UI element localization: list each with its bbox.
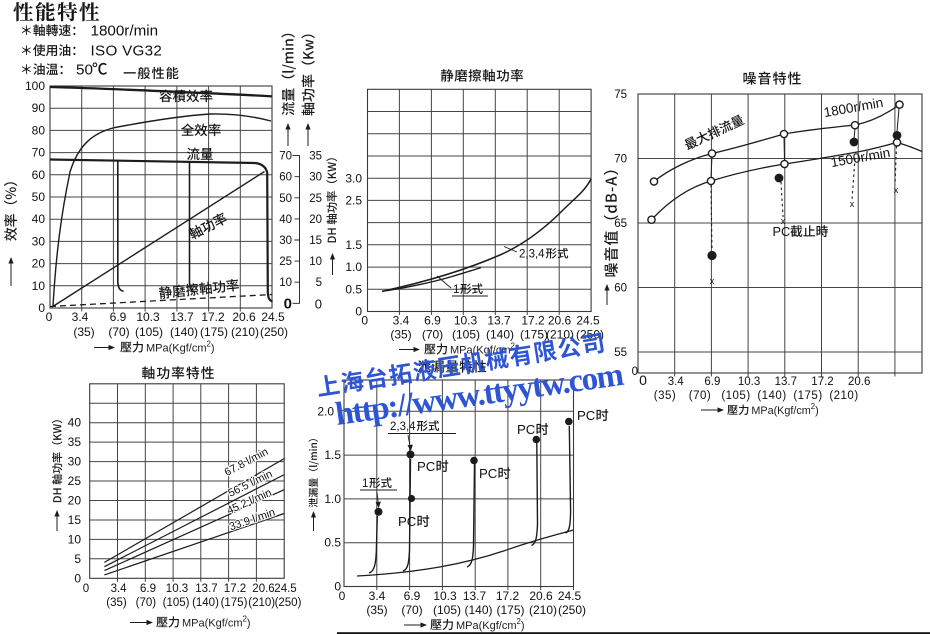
svg-text:(210): (210) <box>546 328 574 342</box>
svg-text:0: 0 <box>361 314 368 328</box>
svg-text:10: 10 <box>68 532 82 546</box>
svg-text:1.5: 1.5 <box>324 448 341 462</box>
svg-text:10: 10 <box>279 277 292 289</box>
svg-text:24.5: 24.5 <box>274 583 296 595</box>
svg-text:(35): (35) <box>106 597 127 609</box>
svg-text:50: 50 <box>76 62 93 79</box>
svg-text:(175): (175) <box>221 597 248 609</box>
svg-text:17.2: 17.2 <box>201 310 225 324</box>
svg-text:x: x <box>710 276 715 286</box>
svg-text:PC: PC <box>479 466 498 481</box>
svg-text:(140): (140) <box>192 597 219 609</box>
svg-text:30: 30 <box>68 455 82 469</box>
svg-text:(70): (70) <box>401 603 422 617</box>
svg-text:ISO VG32: ISO VG32 <box>91 43 163 60</box>
svg-text:(175): (175) <box>496 603 524 617</box>
svg-text:MPa(Kgf/cm2): MPa(Kgf/cm2) <box>751 402 818 417</box>
svg-text:(210): (210) <box>829 390 858 402</box>
svg-text:13.7: 13.7 <box>463 589 487 603</box>
svg-text:(70): (70) <box>689 390 711 402</box>
svg-text:2,3,4: 2,3,4 <box>519 249 545 261</box>
svg-text:80: 80 <box>32 123 46 137</box>
svg-text:(210): (210) <box>529 603 557 617</box>
svg-text:(35): (35) <box>73 325 94 339</box>
svg-text:PC: PC <box>773 224 791 239</box>
svg-text:20.6: 20.6 <box>252 583 274 595</box>
svg-text:5: 5 <box>74 552 81 566</box>
svg-text:MPa(Kgf/cm2): MPa(Kgf/cm2) <box>450 342 519 357</box>
svg-text:1.5: 1.5 <box>345 238 362 252</box>
svg-text:(35): (35) <box>654 390 676 402</box>
svg-text:70: 70 <box>279 151 292 163</box>
svg-text:x: x <box>894 185 899 195</box>
svg-text:75: 75 <box>614 89 627 101</box>
svg-text:3.4: 3.4 <box>72 310 89 324</box>
svg-text:x: x <box>850 199 855 209</box>
svg-text:(70): (70) <box>108 325 129 339</box>
svg-text:6.9: 6.9 <box>404 589 421 603</box>
svg-text:13.7: 13.7 <box>487 314 511 328</box>
svg-text:20.6: 20.6 <box>529 589 553 603</box>
svg-text:40: 40 <box>32 212 46 226</box>
svg-text:(210): (210) <box>231 325 259 339</box>
svg-text:6.9: 6.9 <box>704 376 720 388</box>
svg-text:0: 0 <box>284 295 292 312</box>
svg-text:0: 0 <box>74 571 81 585</box>
svg-text:20: 20 <box>68 494 82 508</box>
svg-text:2.0: 2.0 <box>317 404 334 418</box>
svg-text:1.0: 1.0 <box>324 492 341 506</box>
svg-text:10.3: 10.3 <box>166 583 188 595</box>
svg-text:PC: PC <box>417 459 436 474</box>
svg-text:30: 30 <box>279 235 292 247</box>
svg-text:1.0: 1.0 <box>345 260 362 274</box>
svg-text:30: 30 <box>309 172 322 184</box>
svg-text:0: 0 <box>632 366 638 378</box>
svg-text:20.6: 20.6 <box>548 314 572 328</box>
svg-text:20: 20 <box>32 257 46 271</box>
svg-text:(250): (250) <box>260 325 288 339</box>
svg-text:20: 20 <box>309 214 322 226</box>
svg-text:(35): (35) <box>366 603 387 617</box>
svg-text:35: 35 <box>309 151 322 163</box>
svg-text:MPa(Kgf/cm2): MPa(Kgf/cm2) <box>456 617 525 632</box>
svg-text:(105): (105) <box>452 328 480 342</box>
svg-text:(250): (250) <box>558 603 586 617</box>
svg-text:0: 0 <box>83 583 89 595</box>
svg-text:17.2: 17.2 <box>811 376 833 388</box>
svg-text:10.3: 10.3 <box>433 589 457 603</box>
svg-text:3.4: 3.4 <box>393 314 410 328</box>
svg-text:(175): (175) <box>520 328 548 342</box>
svg-text:0: 0 <box>639 372 647 388</box>
svg-text:3.4: 3.4 <box>668 376 685 388</box>
svg-text:10.3: 10.3 <box>738 376 760 388</box>
svg-text:(250): (250) <box>275 597 302 609</box>
svg-text:10.3: 10.3 <box>454 314 478 328</box>
svg-text:(210): (210) <box>248 597 275 609</box>
svg-text:(105): (105) <box>721 390 750 402</box>
svg-text:10.3: 10.3 <box>136 310 160 324</box>
svg-text:PC: PC <box>517 422 536 437</box>
svg-text:0.5: 0.5 <box>345 282 362 296</box>
svg-text:24.5: 24.5 <box>576 314 600 328</box>
svg-text:30: 30 <box>32 234 46 248</box>
svg-text:10: 10 <box>309 256 322 268</box>
svg-text:10: 10 <box>32 279 46 293</box>
svg-text:40: 40 <box>279 214 292 226</box>
svg-text:1800r/min: 1800r/min <box>91 23 159 40</box>
svg-text:(140): (140) <box>486 328 514 342</box>
svg-text:(140): (140) <box>464 603 492 617</box>
svg-text:0: 0 <box>339 589 346 603</box>
svg-text:20.6: 20.6 <box>848 376 870 388</box>
svg-text:24.5: 24.5 <box>261 310 285 324</box>
svg-text:(70): (70) <box>422 328 443 342</box>
svg-text:17.2: 17.2 <box>224 583 246 595</box>
svg-text:17.2: 17.2 <box>521 314 545 328</box>
svg-text:70: 70 <box>32 146 46 160</box>
svg-text:40: 40 <box>68 416 82 430</box>
svg-text:50: 50 <box>279 193 292 205</box>
svg-text:3.4: 3.4 <box>369 589 386 603</box>
svg-text:100: 100 <box>25 79 45 93</box>
svg-text:60: 60 <box>614 283 627 295</box>
svg-text:(105): (105) <box>135 325 163 339</box>
svg-text:(105): (105) <box>163 597 190 609</box>
svg-text:6.9: 6.9 <box>110 310 127 324</box>
svg-text:25: 25 <box>68 474 82 488</box>
svg-text:(140): (140) <box>757 390 786 402</box>
svg-text:(175): (175) <box>200 325 228 339</box>
svg-text:MPa(Kgf/cm2): MPa(Kgf/cm2) <box>146 340 215 355</box>
svg-text:25: 25 <box>309 193 322 205</box>
svg-text:60: 60 <box>279 172 292 184</box>
svg-text:15: 15 <box>68 513 82 527</box>
svg-text:6.9: 6.9 <box>424 314 441 328</box>
svg-text:35: 35 <box>68 435 82 449</box>
svg-text:13.7: 13.7 <box>775 376 797 388</box>
svg-text:PC: PC <box>398 514 417 529</box>
svg-text:13.7: 13.7 <box>170 310 194 324</box>
svg-text:6.9: 6.9 <box>140 583 156 595</box>
svg-text:20.6: 20.6 <box>232 310 256 324</box>
svg-text:PC: PC <box>577 408 596 423</box>
svg-text:1: 1 <box>453 284 459 296</box>
svg-text:50: 50 <box>32 190 46 204</box>
svg-text:(70): (70) <box>136 597 157 609</box>
svg-text:60: 60 <box>32 168 46 182</box>
svg-text:65: 65 <box>614 218 627 230</box>
svg-text:2.5: 2.5 <box>345 194 362 208</box>
svg-text:3.0: 3.0 <box>345 171 362 185</box>
svg-text:25: 25 <box>279 256 292 268</box>
svg-text:3.4: 3.4 <box>111 583 128 595</box>
svg-text:17.2: 17.2 <box>496 589 520 603</box>
svg-text:0: 0 <box>46 310 53 324</box>
svg-text:(175): (175) <box>793 390 822 402</box>
svg-text:90: 90 <box>32 101 46 115</box>
svg-text:13.7: 13.7 <box>195 583 217 595</box>
svg-text:1: 1 <box>362 478 368 490</box>
svg-text:24.5: 24.5 <box>558 589 582 603</box>
svg-text:5: 5 <box>316 277 322 289</box>
svg-text:0: 0 <box>315 296 322 311</box>
svg-text:70: 70 <box>614 154 627 166</box>
svg-text:(35): (35) <box>390 328 411 342</box>
svg-text:(140): (140) <box>170 325 198 339</box>
svg-text:0.5: 0.5 <box>324 536 341 550</box>
svg-text:15: 15 <box>309 235 322 247</box>
svg-text:MPa(Kgf/cm2): MPa(Kgf/cm2) <box>182 615 251 630</box>
svg-text:(105): (105) <box>433 603 461 617</box>
svg-text:0: 0 <box>38 301 45 315</box>
